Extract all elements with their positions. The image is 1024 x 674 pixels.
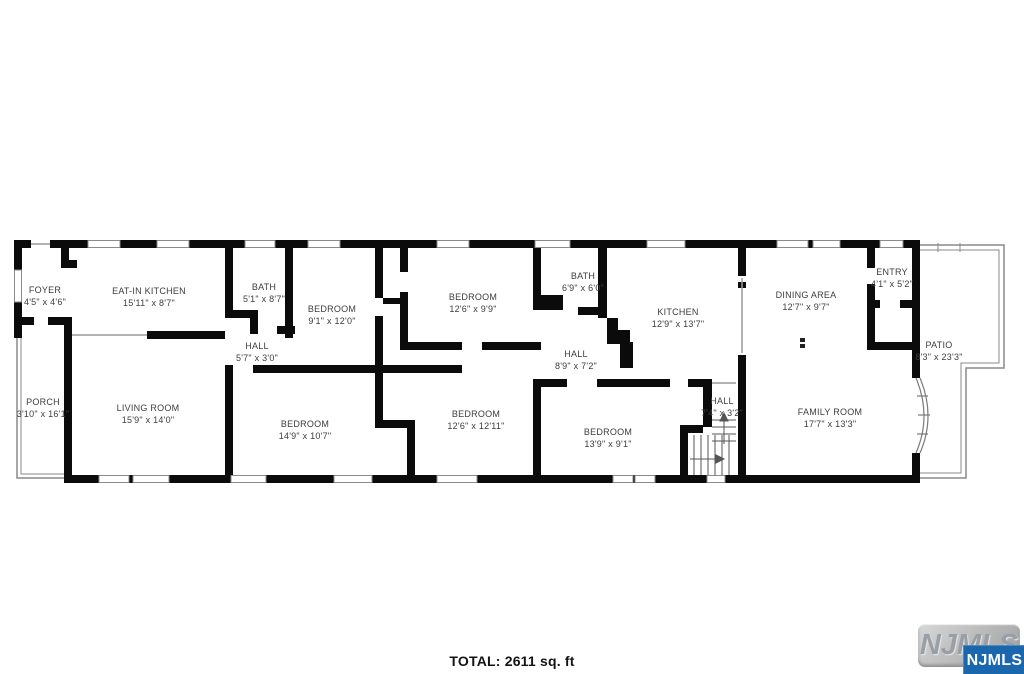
staircase [690,413,736,475]
fixture-mark [800,344,805,348]
room-name: HALL [236,340,278,352]
wall [680,433,688,483]
wall [375,248,383,298]
room-name: BEDROOM [447,408,504,420]
room-name: HALL [701,395,743,407]
room-dims: 12'6" x 12'11" [447,420,504,432]
window [437,476,477,483]
wall [147,331,225,339]
wall [867,342,920,350]
wall [225,365,233,475]
wall [533,379,541,475]
fixture-mark [800,338,805,342]
room-dims: 6'9" x 6'0" [562,282,604,294]
room-name: KITCHEN [652,306,705,318]
room-label-eat-in-kitchen: EAT-IN KITCHEN15'11" x 8'7" [112,285,186,309]
room-dims: 12'6" x 9'9" [449,303,497,315]
room-name: PORCH [17,396,70,408]
room-label-kitchen: KITCHEN12'9" x 13'7" [652,306,705,330]
room-dims: 12'9" x 13'7" [652,318,705,330]
dining-marks [800,338,805,348]
room-dims: 12'7" x 9'7" [776,301,837,313]
wall [400,292,408,350]
window [334,476,372,483]
wall [867,248,875,268]
room-label-hall-3: HALL7'4" x 3'2" [701,395,743,419]
wall [61,260,77,268]
room-label-foyer: FOYER4'5" x 4'6" [24,284,66,308]
wall [64,475,920,483]
wall [738,355,746,483]
wall [738,248,746,276]
stair-arrowhead-right [716,455,724,463]
wall [900,300,920,308]
room-dims: 4'5" x 4'6" [24,296,66,308]
window [535,241,570,248]
wall [597,379,670,387]
wall [20,317,34,325]
room-name: BEDROOM [449,291,497,303]
window [231,476,266,483]
room-dims: 15'9" x 14'0" [117,414,180,426]
room-label-family-room: FAMILY ROOM17'7" x 13'3" [798,406,862,430]
window [880,241,903,248]
room-label-bath-1: BATH5'1" x 8'7" [243,281,285,305]
window [647,241,685,248]
room-dims: 9'1" x 12'0" [308,315,356,327]
room-name: FOYER [24,284,66,296]
wall [407,420,415,477]
room-dims: 7'4" x 3'2" [701,407,743,419]
room-dims: 14'9" x 10'7" [279,430,332,442]
window [635,476,655,483]
wall [400,248,408,272]
wall [867,300,880,308]
window [777,241,808,248]
room-dims: 5'7" x 3'0" [236,352,278,364]
window [437,241,469,248]
room-label-bedroom-1: BEDROOM9'1" x 12'0" [308,303,356,327]
wall [680,425,703,433]
room-dims: 8'9" x 7'2" [555,360,597,372]
room-label-bedroom-3: BEDROOM14'9" x 10'7" [279,418,332,442]
wall [383,298,400,304]
room-name: PATIO [915,339,962,351]
room-dims: 15'11" x 8'7" [112,297,186,309]
wall [607,318,618,332]
walls [14,240,920,483]
openings [31,240,742,383]
windows [15,241,904,483]
bay-window [916,378,930,453]
room-label-living-room: LIVING ROOM15'9" x 14'0" [117,402,180,426]
window [613,476,633,483]
room-name: LIVING ROOM [117,402,180,414]
njmls-badge: NJMLS [963,645,1024,674]
wall [688,379,703,387]
room-dims: 13'9" x 9'1" [584,438,632,450]
wall [867,284,875,350]
room-name: BATH [562,270,604,282]
window [813,241,840,248]
njmls-badge-text: NJMLS [967,652,1023,670]
wall [408,342,462,350]
wall [533,379,567,387]
room-label-bedroom-5: BEDROOM13'9" x 9'1" [584,426,632,450]
window [133,476,169,483]
wall [225,248,233,310]
room-name: HALL [555,348,597,360]
room-label-porch: PORCH3'10" x 16'1" [17,396,70,420]
wall [482,342,541,350]
wall [620,342,633,368]
wall [225,310,258,318]
window [157,241,189,248]
wall [912,453,920,483]
room-label-entry: ENTRY4'1" x 5'2" [871,266,913,290]
room-dims: 3'10" x 16'1" [17,408,70,420]
window [99,476,129,483]
floorplan-page: FOYER4'5" x 4'6" EAT-IN KITCHEN15'11" x … [0,0,1024,674]
room-name: ENTRY [871,266,913,278]
room-label-patio: PATIO8'3" x 23'3" [915,339,962,363]
room-dims: 17'7" x 13'3" [798,418,862,430]
window [707,476,725,483]
window [245,241,275,248]
floorplan-drawing [0,0,1024,674]
window [88,241,120,248]
room-name: FAMILY ROOM [798,406,862,418]
room-label-dining-area: DINING AREA12'7" x 9'7" [776,289,837,313]
window [15,270,22,302]
wall [533,295,563,310]
room-dims: 5'1" x 8'7" [243,293,285,305]
wall [607,330,630,344]
room-name: BEDROOM [279,418,332,430]
room-name: BEDROOM [584,426,632,438]
room-label-hall-1: HALL5'7" x 3'0" [236,340,278,364]
room-name: BEDROOM [308,303,356,315]
room-name: EAT-IN KITCHEN [112,285,186,297]
wall [253,365,462,373]
room-name: BATH [243,281,285,293]
room-label-bedroom-4: BEDROOM12'6" x 12'11" [447,408,504,432]
room-label-bedroom-2: BEDROOM12'6" x 9'9" [449,291,497,315]
room-dims: 8'3" x 23'3" [915,351,962,363]
room-dims: 4'1" x 5'2" [871,278,913,290]
room-name: DINING AREA [776,289,837,301]
room-label-bath-2: BATH6'9" x 6'0" [562,270,604,294]
total-square-footage: TOTAL: 2611 sq. ft [0,653,1024,669]
wall [533,248,541,295]
window [308,241,340,248]
wall [285,248,293,338]
wall [375,316,383,422]
wall [250,318,258,334]
room-label-hall-2: HALL8'9" x 7'2" [555,348,597,372]
